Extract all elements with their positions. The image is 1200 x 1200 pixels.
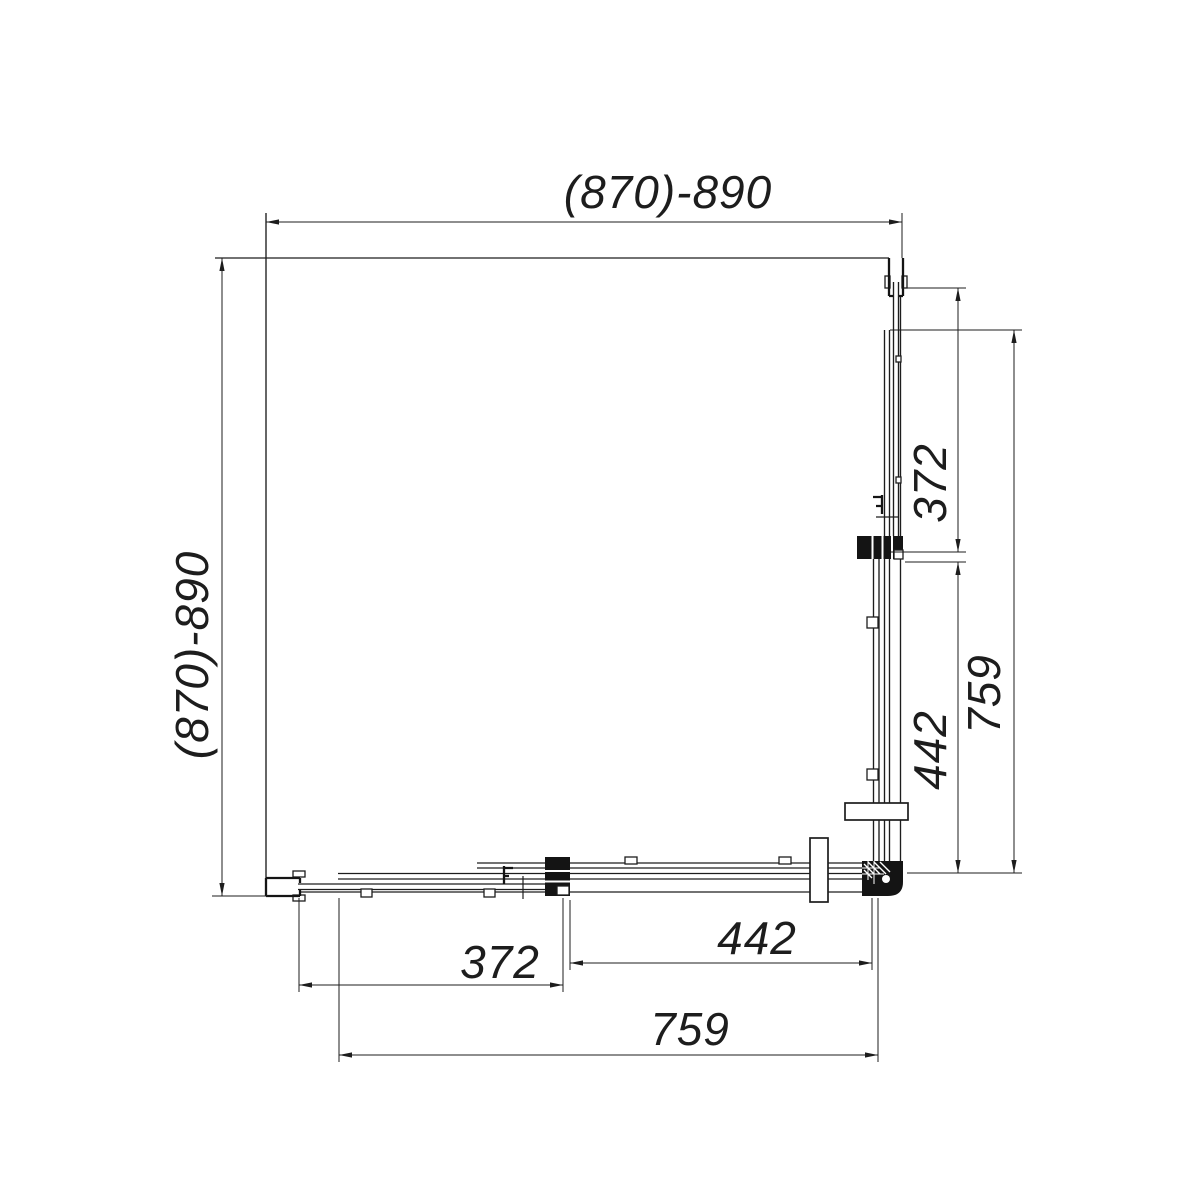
panel-clip — [896, 356, 901, 362]
dim-top-width: (870)-890 — [564, 166, 772, 218]
panel-clip — [779, 857, 791, 864]
f-bracket — [504, 866, 513, 884]
right-door-assembly — [845, 258, 908, 868]
dim-right-759: 759 — [958, 654, 1010, 734]
panel-clip — [625, 857, 637, 864]
corner-post — [862, 861, 903, 896]
dimension-labels: (870)-890 (870)-890 372 442 759 372 442 … — [166, 166, 1010, 1055]
dim-right-372: 372 — [904, 443, 956, 523]
right-center-bracket — [857, 536, 903, 559]
f-bracket — [873, 495, 882, 514]
roller-clip — [867, 617, 878, 628]
roller-clip — [867, 769, 878, 780]
bottom-center-bracket — [545, 857, 570, 896]
dim-bottom-442: 442 — [717, 912, 797, 964]
right-wall-profile — [885, 258, 907, 296]
roller-clip — [361, 889, 372, 897]
roller-clip — [484, 889, 495, 897]
dim-right-442: 442 — [904, 710, 956, 790]
bottom-wall-profile — [266, 871, 305, 901]
dim-bottom-759: 759 — [650, 1003, 730, 1055]
right-door-handle — [845, 803, 908, 820]
drawing-canvas: (870)-890 (870)-890 372 442 759 372 442 … — [0, 0, 1200, 1200]
dim-bottom-372: 372 — [460, 936, 540, 988]
enclosure-plan-drawing: (870)-890 (870)-890 372 442 759 372 442 … — [0, 0, 1200, 1200]
bottom-door-assembly — [266, 838, 866, 902]
dim-left-depth: (870)-890 — [166, 551, 218, 759]
panel-clip — [896, 477, 901, 483]
wall-lines — [215, 213, 889, 878]
corner-bolt — [882, 875, 890, 883]
bottom-door-handle — [810, 838, 828, 902]
